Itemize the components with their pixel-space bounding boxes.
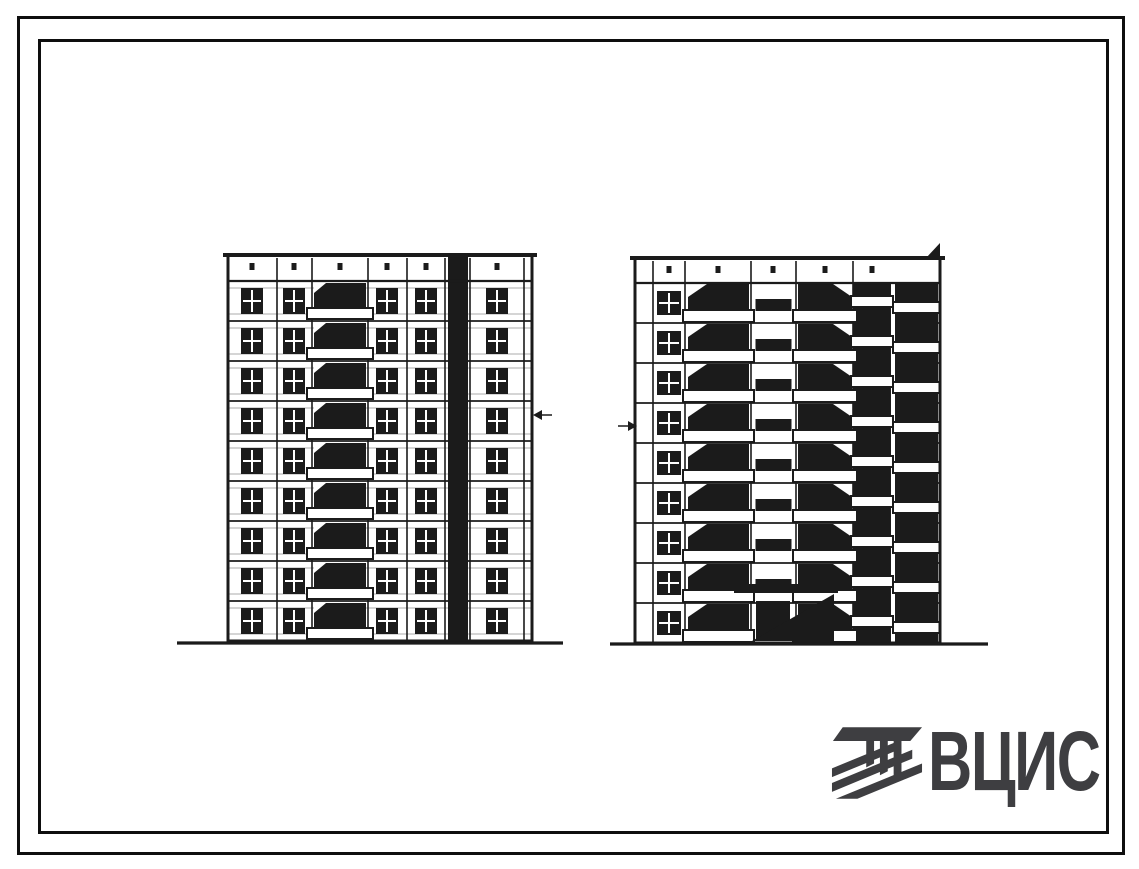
front-elevation — [177, 255, 563, 643]
vcis-logo-text: ВЦИС — [928, 721, 1100, 802]
scanned-drawing-sheet: ВЦИС — [0, 0, 1139, 869]
rear-elevation — [610, 243, 988, 644]
vcis-logo-icon — [830, 721, 924, 802]
vcis-logo: ВЦИС — [830, 721, 1139, 802]
striped-column-emblem — [832, 727, 922, 798]
